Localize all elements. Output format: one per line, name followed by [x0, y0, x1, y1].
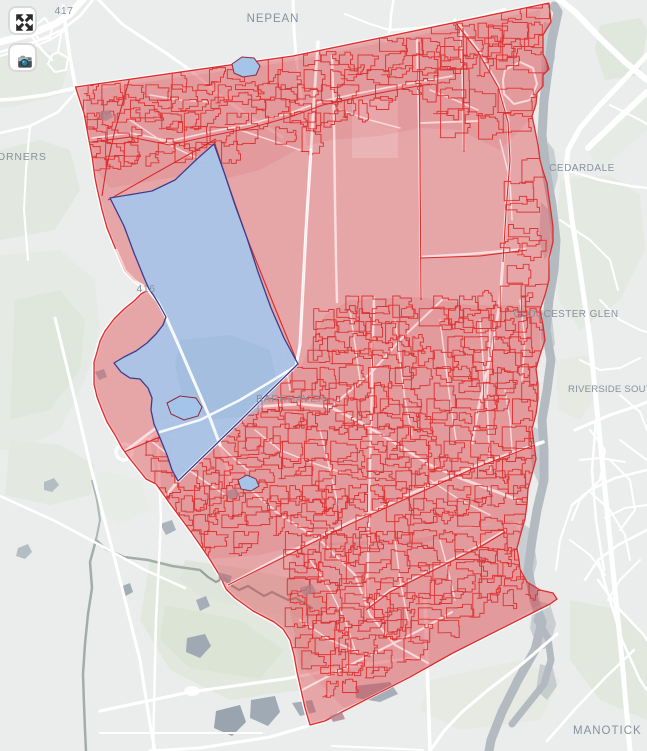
svg-text:RIVERSIDE SOUTH: RIVERSIDE SOUTH	[568, 384, 647, 395]
svg-text:GLOUCESTER GLEN: GLOUCESTER GLEN	[514, 309, 619, 320]
svg-text:MANOTICK: MANOTICK	[573, 725, 642, 737]
svg-text:417: 417	[54, 5, 73, 17]
svg-text:NEPEAN: NEPEAN	[247, 13, 300, 25]
svg-text:ORNERS: ORNERS	[0, 151, 47, 163]
svg-text:CEDARDALE: CEDARDALE	[549, 163, 615, 174]
svg-text:416: 416	[136, 283, 155, 295]
svg-text:BARRHAVEN: BARRHAVEN	[256, 393, 326, 405]
